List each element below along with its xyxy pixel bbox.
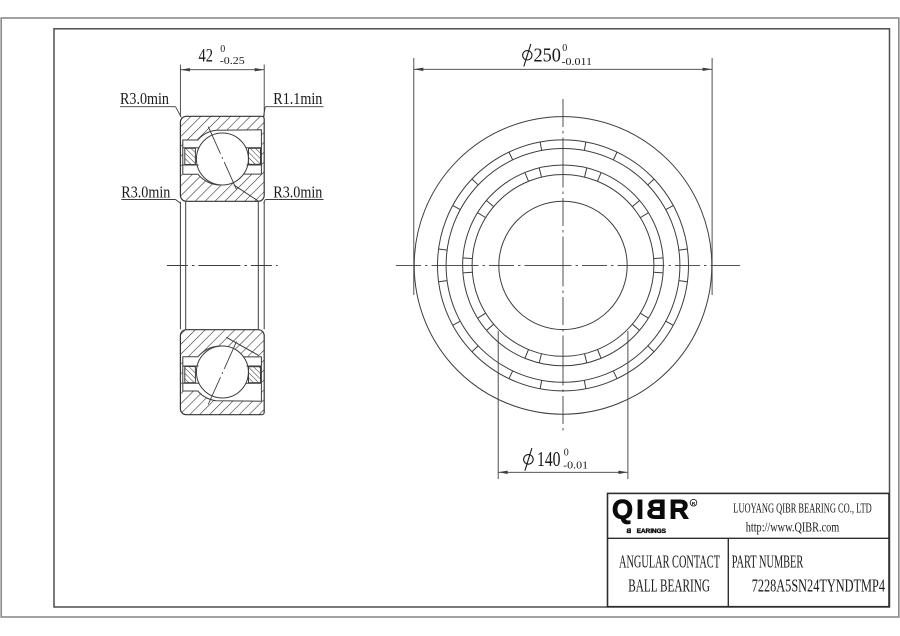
svg-text:LUOYANG QIBR BEARING CO., LTD: LUOYANG QIBR BEARING CO., LTD bbox=[733, 501, 872, 516]
svg-text:BALL BEARING: BALL BEARING bbox=[628, 576, 710, 596]
svg-text:http://www.QIBR.com: http://www.QIBR.com bbox=[746, 520, 840, 535]
svg-text:EARINGS: EARINGS bbox=[637, 528, 667, 535]
svg-text:-0.011: -0.011 bbox=[562, 57, 593, 68]
svg-text:B: B bbox=[626, 528, 631, 535]
svg-text:ANGULAR CONTACT: ANGULAR CONTACT bbox=[619, 551, 720, 571]
svg-text:R3.0min: R3.0min bbox=[121, 183, 170, 202]
svg-text:7228A5SN24TYNDTMP4: 7228A5SN24TYNDTMP4 bbox=[752, 576, 885, 596]
svg-text:R3.0min: R3.0min bbox=[120, 89, 169, 108]
svg-text:0: 0 bbox=[564, 447, 569, 458]
svg-text:R1.1min: R1.1min bbox=[273, 89, 322, 108]
svg-text:B: B bbox=[647, 495, 667, 525]
svg-text:R: R bbox=[692, 501, 696, 507]
svg-text:42: 42 bbox=[199, 46, 214, 66]
svg-text:250: 250 bbox=[534, 45, 561, 66]
svg-text:0: 0 bbox=[220, 44, 225, 55]
svg-text:-0.25: -0.25 bbox=[220, 56, 245, 67]
svg-text:R3.0min: R3.0min bbox=[273, 183, 322, 202]
svg-text:R: R bbox=[669, 495, 689, 525]
svg-text:PART NUMBER: PART NUMBER bbox=[732, 551, 804, 571]
svg-text:140: 140 bbox=[537, 447, 561, 471]
svg-text:0: 0 bbox=[562, 43, 567, 54]
svg-text:-0.01: -0.01 bbox=[563, 460, 588, 471]
svg-text:QI: QI bbox=[612, 495, 647, 525]
